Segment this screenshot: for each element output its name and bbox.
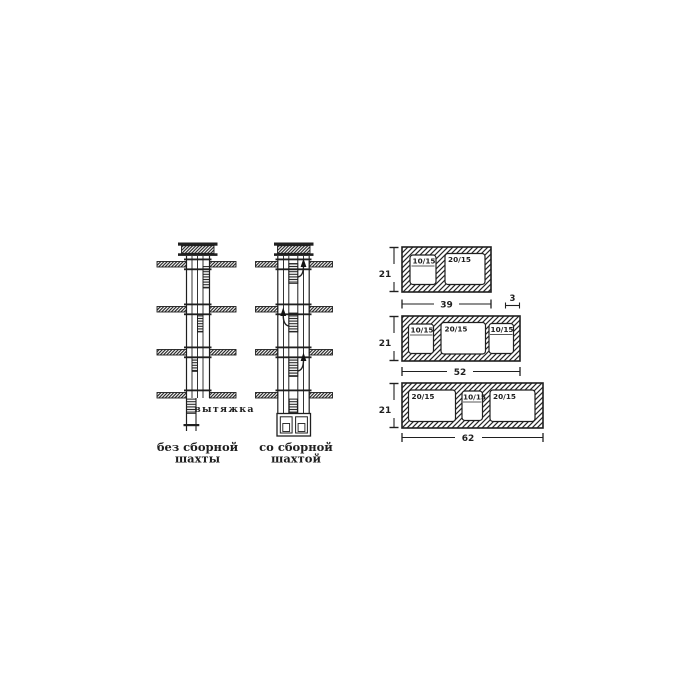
- floor-slab: [256, 350, 278, 356]
- floor-slab: [157, 350, 187, 356]
- floor-slab: [157, 393, 187, 399]
- floor-slab: [157, 262, 187, 268]
- collection-base-box: [277, 414, 311, 437]
- floor-slab: [309, 262, 332, 268]
- vent-grille: [289, 399, 297, 413]
- width-dimension-label: 39: [440, 301, 453, 311]
- opening-label: 20/15: [448, 255, 471, 264]
- vent-grille: [192, 357, 198, 372]
- floor-slab: [210, 393, 237, 399]
- width-dimension-label: 52: [454, 368, 467, 378]
- roof-cap: [178, 243, 218, 256]
- opening-label: 20/15: [445, 325, 468, 334]
- opening-label: 20/15: [412, 392, 435, 401]
- floor-slab: [309, 350, 332, 356]
- exhaust-label: вытяжка: [194, 404, 255, 415]
- roof-cap: [274, 243, 314, 256]
- opening-label: 10/15: [413, 257, 436, 266]
- vent-grille: [198, 314, 204, 332]
- floor-slab: [256, 393, 278, 399]
- floor-slab: [157, 307, 187, 313]
- caption-line: шахтой: [271, 452, 321, 466]
- opening-label: 20/15: [493, 392, 516, 401]
- opening-label: 10/15: [411, 326, 434, 335]
- height-dimension-label: 21: [379, 339, 392, 349]
- floor-slab: [309, 307, 332, 313]
- background: [0, 0, 700, 700]
- height-dimension-label: 21: [379, 406, 392, 416]
- width-dimension-label: 62: [462, 434, 475, 444]
- height-dimension-label: 21: [379, 270, 392, 280]
- floor-slab: [256, 307, 278, 313]
- opening-label: 10/15: [463, 393, 486, 402]
- vent-grille: [203, 267, 210, 289]
- wall-thickness-label: 3: [510, 294, 516, 304]
- base-cell-inner: [298, 424, 305, 432]
- floor-slab: [210, 307, 237, 313]
- vent-grille: [289, 264, 298, 284]
- vent-grille: [289, 358, 298, 377]
- caption-line: шахты: [175, 452, 221, 466]
- floor-slab: [309, 393, 332, 399]
- base-cell-inner: [283, 424, 290, 432]
- floor-slab: [210, 262, 237, 268]
- floor-slab: [210, 350, 237, 356]
- opening-label: 10/15: [491, 325, 514, 334]
- figure-canvas: вытяжка без сборной шахты: [0, 0, 700, 700]
- floor-slab: [256, 262, 278, 268]
- ventilation-diagram: вытяжка без сборной шахты: [0, 0, 700, 700]
- vent-grille: [289, 313, 298, 332]
